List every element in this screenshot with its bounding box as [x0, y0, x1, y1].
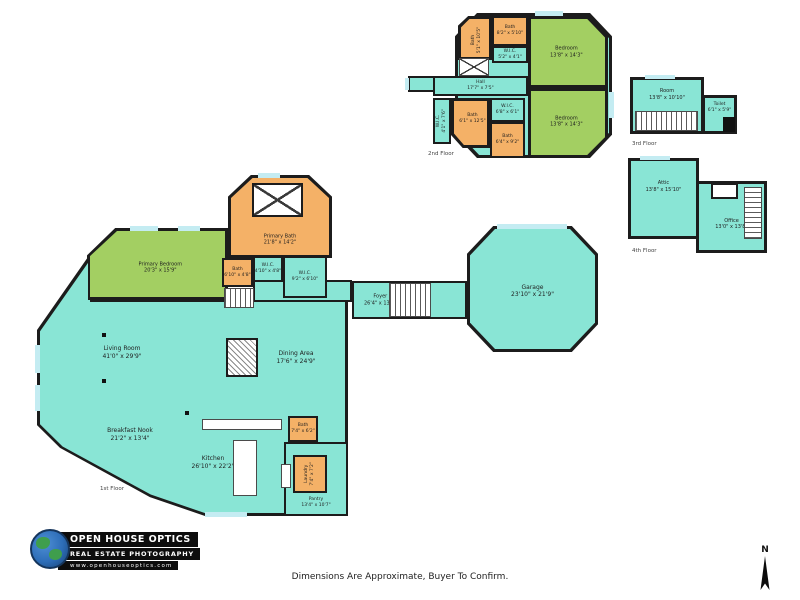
room-2f-bath-top: Bath8'2" x 5'10" — [492, 16, 528, 46]
column-post — [185, 411, 189, 415]
window — [645, 75, 675, 79]
floor-label-4th: 4th Floor — [632, 248, 657, 254]
globe-landmass — [36, 537, 50, 549]
room-label: Bedroom13'8" x 14'3" — [550, 115, 583, 128]
company-logo-icon — [30, 529, 70, 569]
window — [205, 512, 247, 517]
kitchen-island — [233, 440, 257, 496]
company-website: www.openhouseoptics.com — [58, 561, 178, 570]
window — [609, 92, 614, 118]
wall-post — [723, 117, 735, 132]
disclaimer-text: Dimensions Are Approximate, Buyer To Con… — [0, 572, 800, 582]
company-tagline: REAL ESTATE PHOTOGRAPHY — [58, 548, 200, 560]
room-1f-bath-kitchen: Bath7'4" x 6'2" — [288, 416, 318, 442]
room-2f-bedroom-bottom: Bedroom13'8" x 14'3" — [528, 88, 608, 158]
room-label: Toilet6'1" x 5'9" — [708, 102, 732, 114]
column-post — [102, 379, 106, 383]
room-label: Bath6'1" x 12'5" — [459, 113, 485, 125]
room-2f-wic-left: W.I.C.4'1" x 7'6" — [433, 98, 451, 144]
room-label: Bath8'2" x 5'10" — [497, 25, 523, 37]
kitchen-counter-top — [202, 419, 282, 430]
globe-landmass — [49, 549, 62, 560]
window — [258, 173, 280, 178]
room-primary-bedroom: Primary Bedroom20'3" x 15'9" — [87, 228, 228, 300]
room-2f-bedroom-top: Bedroom13'8" x 14'3" — [528, 16, 608, 88]
window — [35, 385, 40, 411]
room-2f-wic-top: W.I.C.5'2" x 4'1" — [492, 46, 528, 63]
stairs-1f — [224, 288, 254, 308]
column-post — [102, 333, 106, 337]
room-label: Hall17'7" x 7'5" — [467, 80, 493, 92]
north-arrow-icon — [758, 556, 772, 594]
window — [178, 226, 200, 231]
window — [535, 11, 563, 16]
room-label: W.I.C.5'2" x 4'1" — [498, 49, 522, 61]
room-1f-wic-small: W.I.C.4'10" x 4'8" — [253, 256, 283, 282]
closet-4f — [711, 183, 738, 199]
room-label: Room13'8" x 10'10" — [649, 88, 685, 101]
stairs-3f — [635, 111, 698, 131]
room-label: Bath7'4" x 6'2" — [291, 423, 315, 435]
stairs-2f-icon — [459, 58, 489, 76]
room-label: Office13'0" x 13'8" — [715, 218, 748, 231]
room-2f-bath-upper-left: Bath5'1" x 10'5" — [458, 16, 492, 60]
room-label: W.I.C.4'10" x 4'8" — [255, 263, 281, 275]
skylight-icon — [252, 183, 303, 217]
room-4f-attic: Attic13'8" x 15'10" — [628, 158, 699, 239]
room-label: W.I.C.4'1" x 7'6" — [436, 109, 448, 133]
room-2f-bath-lower-left: Bath6'1" x 12'5" — [451, 98, 490, 148]
window — [640, 156, 670, 160]
room-1f-garage: Garage23'10" x 21'9" — [467, 226, 598, 352]
room-label: Primary Bedroom20'3" x 15'9" — [139, 261, 183, 274]
room-label: Bedroom13'8" x 14'3" — [550, 46, 583, 59]
floor-plan-page: { "meta": { "disclaimer": "Dimensions Ar… — [0, 0, 800, 600]
north-label: N — [752, 545, 778, 555]
room-1f-wic-big: W.I.C.9'2" x 6'10" — [283, 256, 327, 298]
room-label-dining-area: Dining Area17'6" x 24'9" — [276, 350, 315, 366]
window — [35, 345, 40, 373]
room-label: Primary Bath21'8" x 14'2" — [264, 233, 297, 246]
window — [497, 224, 567, 229]
stairs-foyer — [389, 283, 431, 317]
floor-label-2nd: 2nd Floor — [428, 151, 454, 157]
room-label: Bath5'1" x 10'5" — [471, 27, 483, 53]
room-2f-hall: Hall17'7" x 7'5" — [433, 76, 528, 96]
company-name: OPEN HOUSE OPTICS — [58, 532, 198, 547]
room-label: Attic13'8" x 15'10" — [646, 180, 682, 193]
room-label: W.I.C.6'8" x 6'1" — [496, 104, 520, 116]
room-label-living-room: Living Room41'0" x 29'9" — [102, 345, 141, 361]
floor-label-3rd: 3rd Floor — [632, 141, 657, 147]
floor-label-1st: 1st Floor — [100, 486, 124, 492]
room-1f-laundry: Laundry7'4" x 7'2" — [293, 455, 327, 493]
window — [405, 78, 409, 90]
room-label: Bath6'10" x 4'8" — [224, 267, 250, 279]
room-label: Laundry7'4" x 7'2" — [304, 462, 316, 486]
room-label-breakfast-nook: Breakfast Nook21'2" x 13'4" — [107, 427, 153, 443]
window — [130, 226, 158, 231]
room-label-kitchen: Kitchen26'10" x 22'2" — [192, 455, 235, 471]
room-label: Garage23'10" x 21'9" — [511, 284, 554, 300]
room-2f-wic-mid: W.I.C.6'8" x 6'1" — [490, 98, 525, 122]
logo-banner: OPEN HOUSE OPTICS REAL ESTATE PHOTOGRAPH… — [58, 532, 200, 570]
room-label: W.I.C.9'2" x 6'10" — [292, 271, 318, 283]
room-label: Bath6'4" x 9'2" — [496, 134, 520, 146]
room-2f-bath-bottom: Bath6'4" x 9'2" — [490, 122, 525, 158]
room-1f-bath-suite: Bath6'10" x 4'8" — [222, 258, 253, 287]
fireplace-island — [226, 338, 258, 377]
stairs-4f — [744, 187, 762, 239]
north-indicator: N — [752, 545, 778, 598]
room-label-pantry: Pantry13'4" x 10'7" — [301, 497, 330, 509]
kitchen-cabinets — [281, 464, 291, 488]
